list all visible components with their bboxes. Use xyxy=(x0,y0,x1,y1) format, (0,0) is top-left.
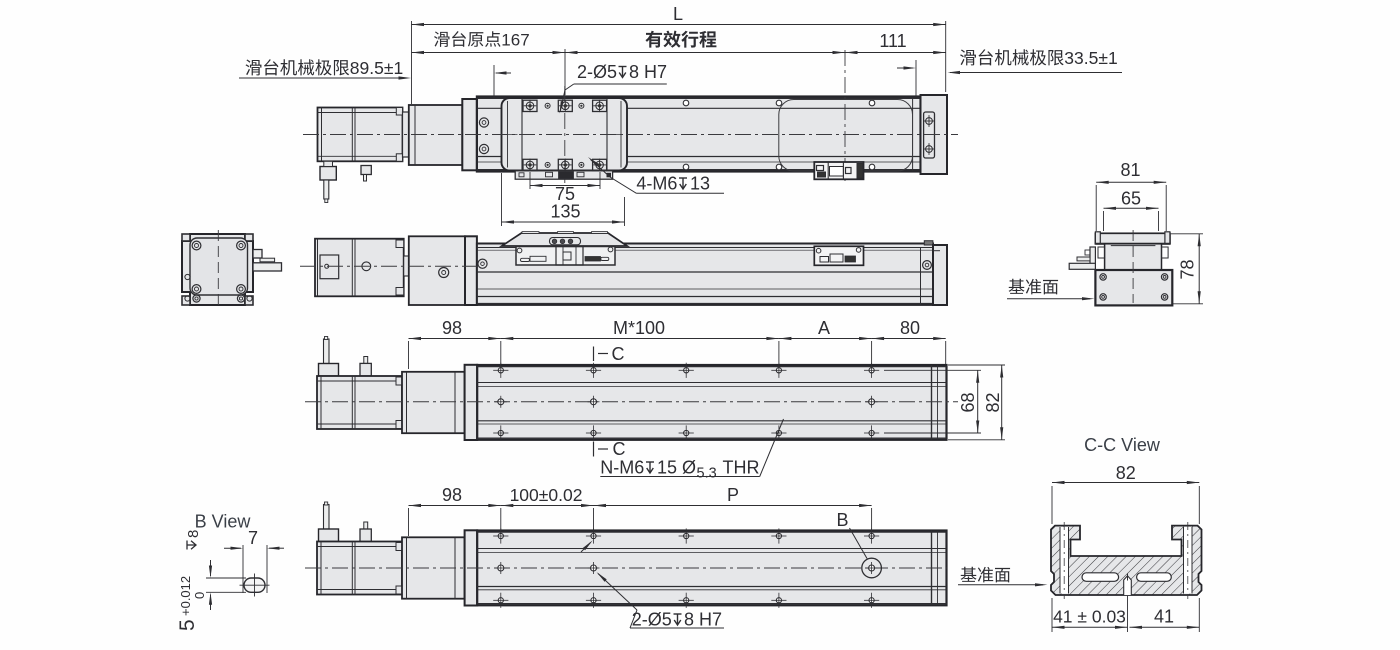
svg-text:65: 65 xyxy=(1121,189,1141,209)
svg-text:82: 82 xyxy=(983,392,1003,412)
svg-text:100±0.02: 100±0.02 xyxy=(510,485,583,505)
svg-text:A: A xyxy=(818,318,830,338)
svg-text:8 H7: 8 H7 xyxy=(684,610,722,630)
svg-text:B View: B View xyxy=(195,512,252,532)
svg-text:78: 78 xyxy=(1178,259,1198,279)
svg-text:135: 135 xyxy=(550,202,580,222)
svg-text:41: 41 xyxy=(1154,607,1174,627)
svg-text:THR: THR xyxy=(723,458,760,478)
svg-text:B: B xyxy=(836,510,848,530)
svg-text:2-Ø5: 2-Ø5 xyxy=(577,62,617,82)
svg-text:89.5±1: 89.5±1 xyxy=(350,58,403,78)
svg-text:98: 98 xyxy=(442,485,462,505)
svg-text:8 H7: 8 H7 xyxy=(629,62,667,82)
svg-text:5: 5 xyxy=(176,619,199,631)
svg-text:81: 81 xyxy=(1120,160,1140,180)
svg-text:15 Ø: 15 Ø xyxy=(657,458,696,478)
svg-text:111: 111 xyxy=(879,31,906,51)
svg-text:33.5±1: 33.5±1 xyxy=(1064,48,1117,68)
svg-text:2-Ø5: 2-Ø5 xyxy=(632,610,672,630)
svg-text:98: 98 xyxy=(442,318,462,338)
svg-text:41 ± 0.03: 41 ± 0.03 xyxy=(1053,607,1126,627)
svg-text:C: C xyxy=(612,344,625,364)
svg-text:167: 167 xyxy=(501,31,529,50)
svg-text:4-M6: 4-M6 xyxy=(636,174,677,194)
svg-text:N-M6: N-M6 xyxy=(600,458,644,478)
svg-text:C-C View: C-C View xyxy=(1084,435,1161,455)
svg-text:68: 68 xyxy=(958,392,978,412)
svg-text:7: 7 xyxy=(248,528,258,548)
svg-text:82: 82 xyxy=(1116,463,1136,483)
svg-text:M*100: M*100 xyxy=(613,318,665,338)
svg-text:L: L xyxy=(673,4,683,24)
svg-text:13: 13 xyxy=(690,174,710,194)
svg-text:0: 0 xyxy=(192,592,207,599)
svg-text:5.3: 5.3 xyxy=(697,466,717,482)
svg-text:80: 80 xyxy=(900,318,920,338)
svg-text:8: 8 xyxy=(185,530,202,538)
svg-text:C: C xyxy=(613,439,626,459)
svg-text:P: P xyxy=(727,485,739,505)
svg-text:+0.012: +0.012 xyxy=(178,576,193,616)
